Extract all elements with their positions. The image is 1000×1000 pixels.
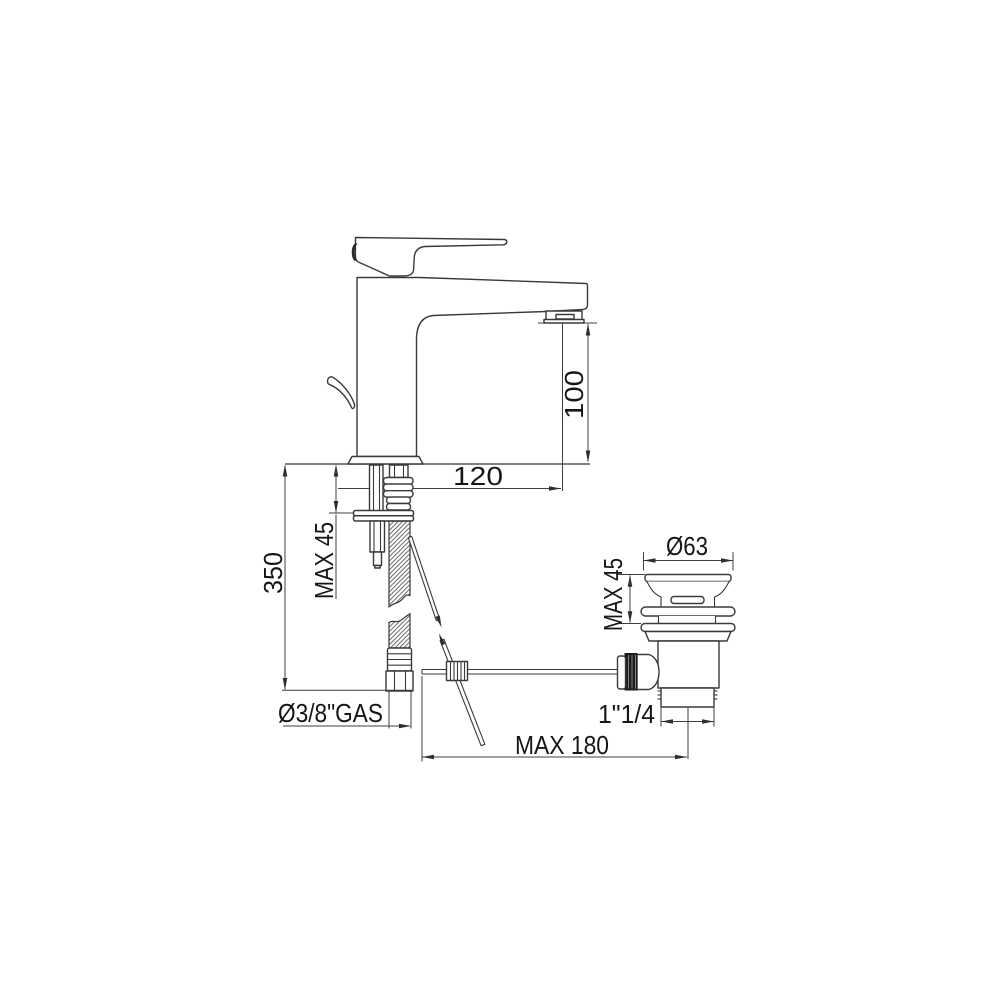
pop-up-lift-lever [328, 377, 355, 409]
arrowhead [628, 611, 633, 623]
aerator-insert [556, 315, 574, 320]
rod-attachment-knob [618, 654, 660, 691]
rod-arrowhead [435, 615, 443, 628]
arrowhead [675, 755, 687, 760]
waste-neck-fill [659, 616, 716, 624]
waste-body [658, 641, 719, 688]
aerator [544, 311, 584, 323]
hose-nut-ring [384, 484, 414, 491]
spout-height-label: 100 [559, 370, 589, 419]
mounting-washer [354, 511, 414, 516]
knob-hub [637, 655, 659, 690]
supply-shank [390, 465, 409, 478]
waste-tailpiece [658, 688, 718, 707]
waste-flange-diameter-label: Ø63 [666, 531, 708, 561]
supply-connection-label: Ø3/8"GAS [278, 698, 383, 728]
pop-up-linkage [408, 536, 618, 761]
waste-backnut [645, 632, 731, 642]
arrowhead [334, 465, 339, 477]
hex-nut [386, 671, 413, 691]
arrowhead [549, 486, 561, 491]
hose-nut-ring [384, 478, 414, 485]
spout-reach-label: 120 [453, 461, 503, 491]
waste-thread-label: 1"1/4 [598, 699, 655, 729]
stud-tip [374, 552, 382, 566]
faucet-body [357, 278, 588, 457]
rod-reach-max-label: MAX 180 [515, 730, 609, 760]
arrowhead [644, 558, 656, 563]
arrowhead [399, 724, 411, 729]
pop-up-rod-upper [408, 536, 439, 620]
arrowhead [702, 719, 714, 724]
waste-top-gasket [641, 607, 735, 616]
aerator-face [544, 320, 584, 324]
waste-flange-rim [645, 575, 731, 582]
arrowhead [661, 719, 673, 724]
arrowhead [586, 324, 591, 336]
threaded-stud-lower [370, 521, 385, 552]
arrowhead [721, 558, 733, 563]
under-counter-assembly [354, 465, 414, 691]
arrowhead [334, 501, 339, 513]
hose-nut-ring [387, 504, 411, 511]
supply-hose-upper [389, 521, 410, 607]
mounting-nut-plate [354, 516, 414, 521]
faucet-dimension-diagram: 120 100 350 MAX 45 Ø3/8"GAS Ø63 MAX 45 1… [0, 0, 1000, 1000]
mounting-stud [370, 465, 384, 511]
base-plate [348, 457, 423, 465]
arrowhead [628, 575, 633, 587]
arrowhead [283, 678, 288, 690]
total-height-label: 350 [258, 552, 288, 594]
pop-up-waste-drain [618, 575, 736, 760]
arrowhead [422, 755, 434, 760]
faucet [328, 238, 588, 465]
technical-drawing-canvas: 120 100 350 MAX 45 Ø3/8"GAS Ø63 MAX 45 1… [0, 0, 1000, 1000]
deck-thickness-label: MAX 45 [309, 522, 339, 599]
waste-bottom-gasket [641, 624, 735, 632]
hose-nut-ring [387, 497, 411, 503]
arrowhead [586, 451, 591, 463]
tailpiece-body [661, 688, 714, 707]
supply-hose-lower [389, 614, 410, 648]
click-clack-cap [671, 597, 704, 604]
faucet-handle [355, 238, 506, 277]
knob-end-ring [618, 656, 626, 689]
arrowhead [283, 465, 288, 477]
hose-nut-ring [384, 491, 414, 497]
stud-tip-cap [375, 566, 380, 569]
waste-deck-max-label: MAX 45 [598, 558, 628, 631]
pop-up-rod-lower [440, 639, 485, 745]
